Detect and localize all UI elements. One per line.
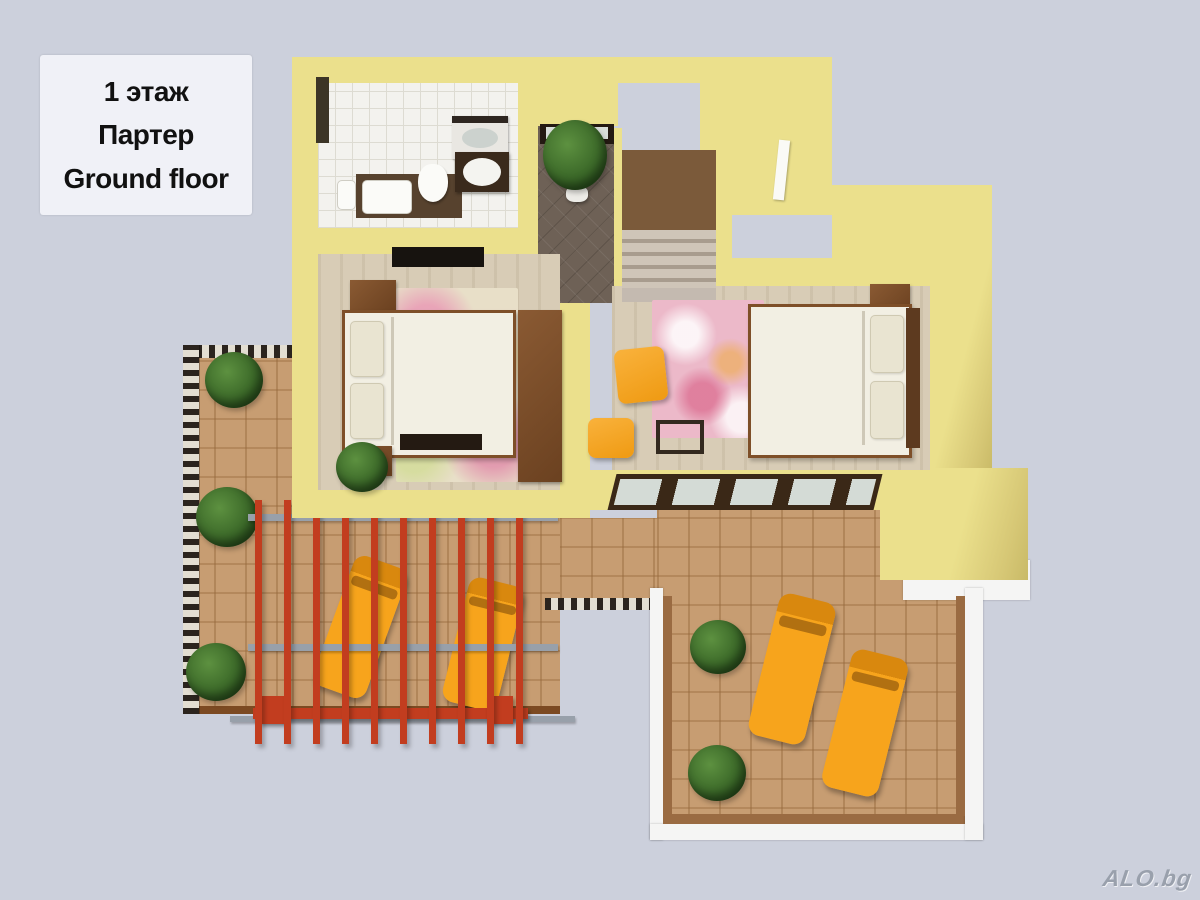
parapet-wall-left — [650, 588, 663, 840]
pillow — [350, 383, 384, 439]
staircase-landing — [622, 150, 716, 230]
wall-bath-east — [518, 83, 538, 228]
pillow — [870, 381, 904, 439]
cistern — [337, 180, 356, 210]
pergola-slats — [255, 500, 537, 744]
duvet-fold — [862, 311, 865, 445]
toilet — [418, 164, 448, 202]
shrub — [690, 620, 746, 674]
floor-label-line1: 1 этаж — [104, 70, 189, 113]
wall-east — [930, 211, 992, 473]
potted-plant — [336, 442, 388, 492]
sink-basin — [463, 158, 501, 186]
double-bed — [748, 304, 912, 458]
sink-vanity — [455, 152, 509, 192]
parapet-trim-bottom — [663, 814, 965, 824]
wall-southeast-corner — [880, 468, 1028, 580]
armchair — [613, 346, 668, 405]
parapet-wall-right — [965, 588, 983, 840]
duvet-fold — [391, 317, 394, 445]
floor-label: 1 этаж Партер Ground floor — [40, 55, 252, 215]
terrace-strip-floor — [560, 518, 657, 606]
wall-top — [292, 57, 832, 83]
pillow — [350, 321, 384, 377]
sink-reflection — [462, 128, 498, 148]
window-slot-west — [316, 77, 329, 143]
wall-west — [292, 83, 318, 518]
armchair — [588, 418, 634, 458]
shrub — [205, 352, 263, 408]
luggage-rack — [656, 420, 704, 454]
potted-plant — [543, 120, 607, 190]
bed-bench — [400, 434, 482, 450]
shrub — [186, 643, 246, 701]
pillow — [870, 315, 904, 373]
floor-plan-scene: 1 этаж Партер Ground floor ALO.bg — [0, 0, 1200, 900]
floor-label-line3: Ground floor — [63, 157, 228, 200]
wall-bedroom-left-south — [292, 490, 590, 518]
parapet-wall-bottom — [650, 824, 983, 840]
terrace-strip-railing — [545, 598, 660, 610]
shrub — [688, 745, 746, 801]
floor-label-line2: Партер — [98, 113, 194, 156]
wall-ext-top — [832, 185, 992, 211]
bed-headboard — [906, 308, 920, 448]
wardrobe — [518, 310, 562, 482]
window-band — [608, 474, 883, 510]
watermark-logo: ALO.bg — [1101, 865, 1194, 892]
bathtub — [362, 180, 412, 214]
parapet-trim-right — [956, 596, 965, 816]
tv-screen — [392, 247, 484, 267]
staircase-steps — [622, 230, 716, 288]
nightstand — [350, 280, 396, 310]
parapet-trim-left — [663, 596, 672, 826]
